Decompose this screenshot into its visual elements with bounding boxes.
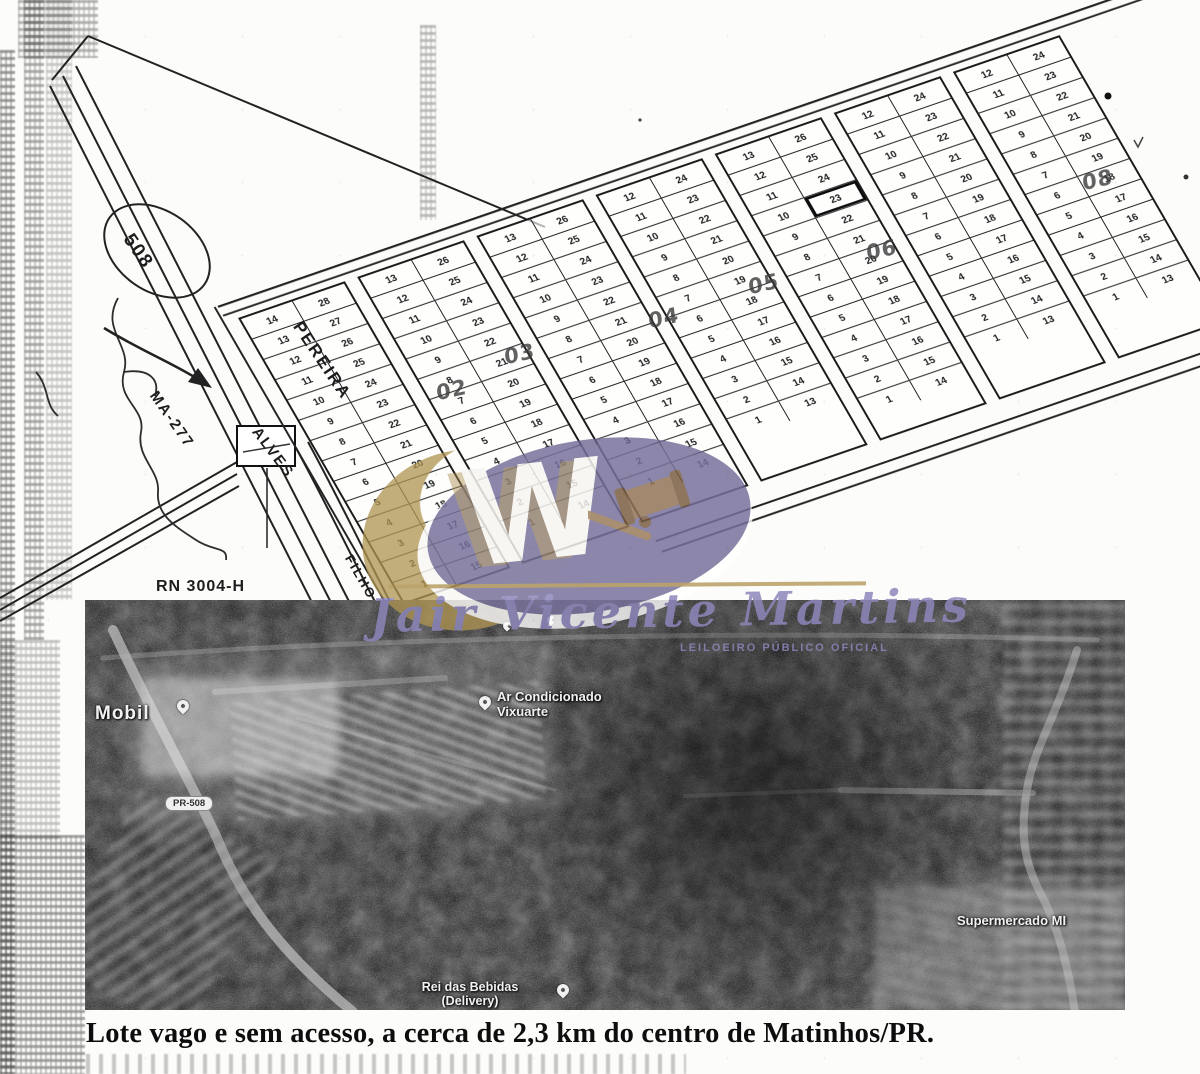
rn-marker-label: RN 3004-H	[156, 578, 245, 596]
scan-streak	[0, 835, 85, 1074]
photo-caption: Lote vago e sem acesso, a cerca de 2,3 k…	[86, 1018, 934, 1050]
supermarket-label: Supermercado MI	[957, 914, 1066, 929]
satellite-image: Mobil PR-508 Ar Condicionado Vixuarte Re…	[85, 600, 1125, 1010]
gas-station-label: Mobil	[95, 703, 150, 725]
road-badge: PR-508	[165, 796, 213, 811]
business-label-bottom: Rei das Bebidas (Delivery)	[385, 980, 555, 1009]
business-label-top: Ar Condicionado Vixuarte	[497, 690, 602, 720]
scanned-document-page: 508 PEREIRA MA-277 ALVES FILHO RN 3004-H…	[0, 0, 1200, 1074]
scan-streak	[86, 1054, 686, 1074]
